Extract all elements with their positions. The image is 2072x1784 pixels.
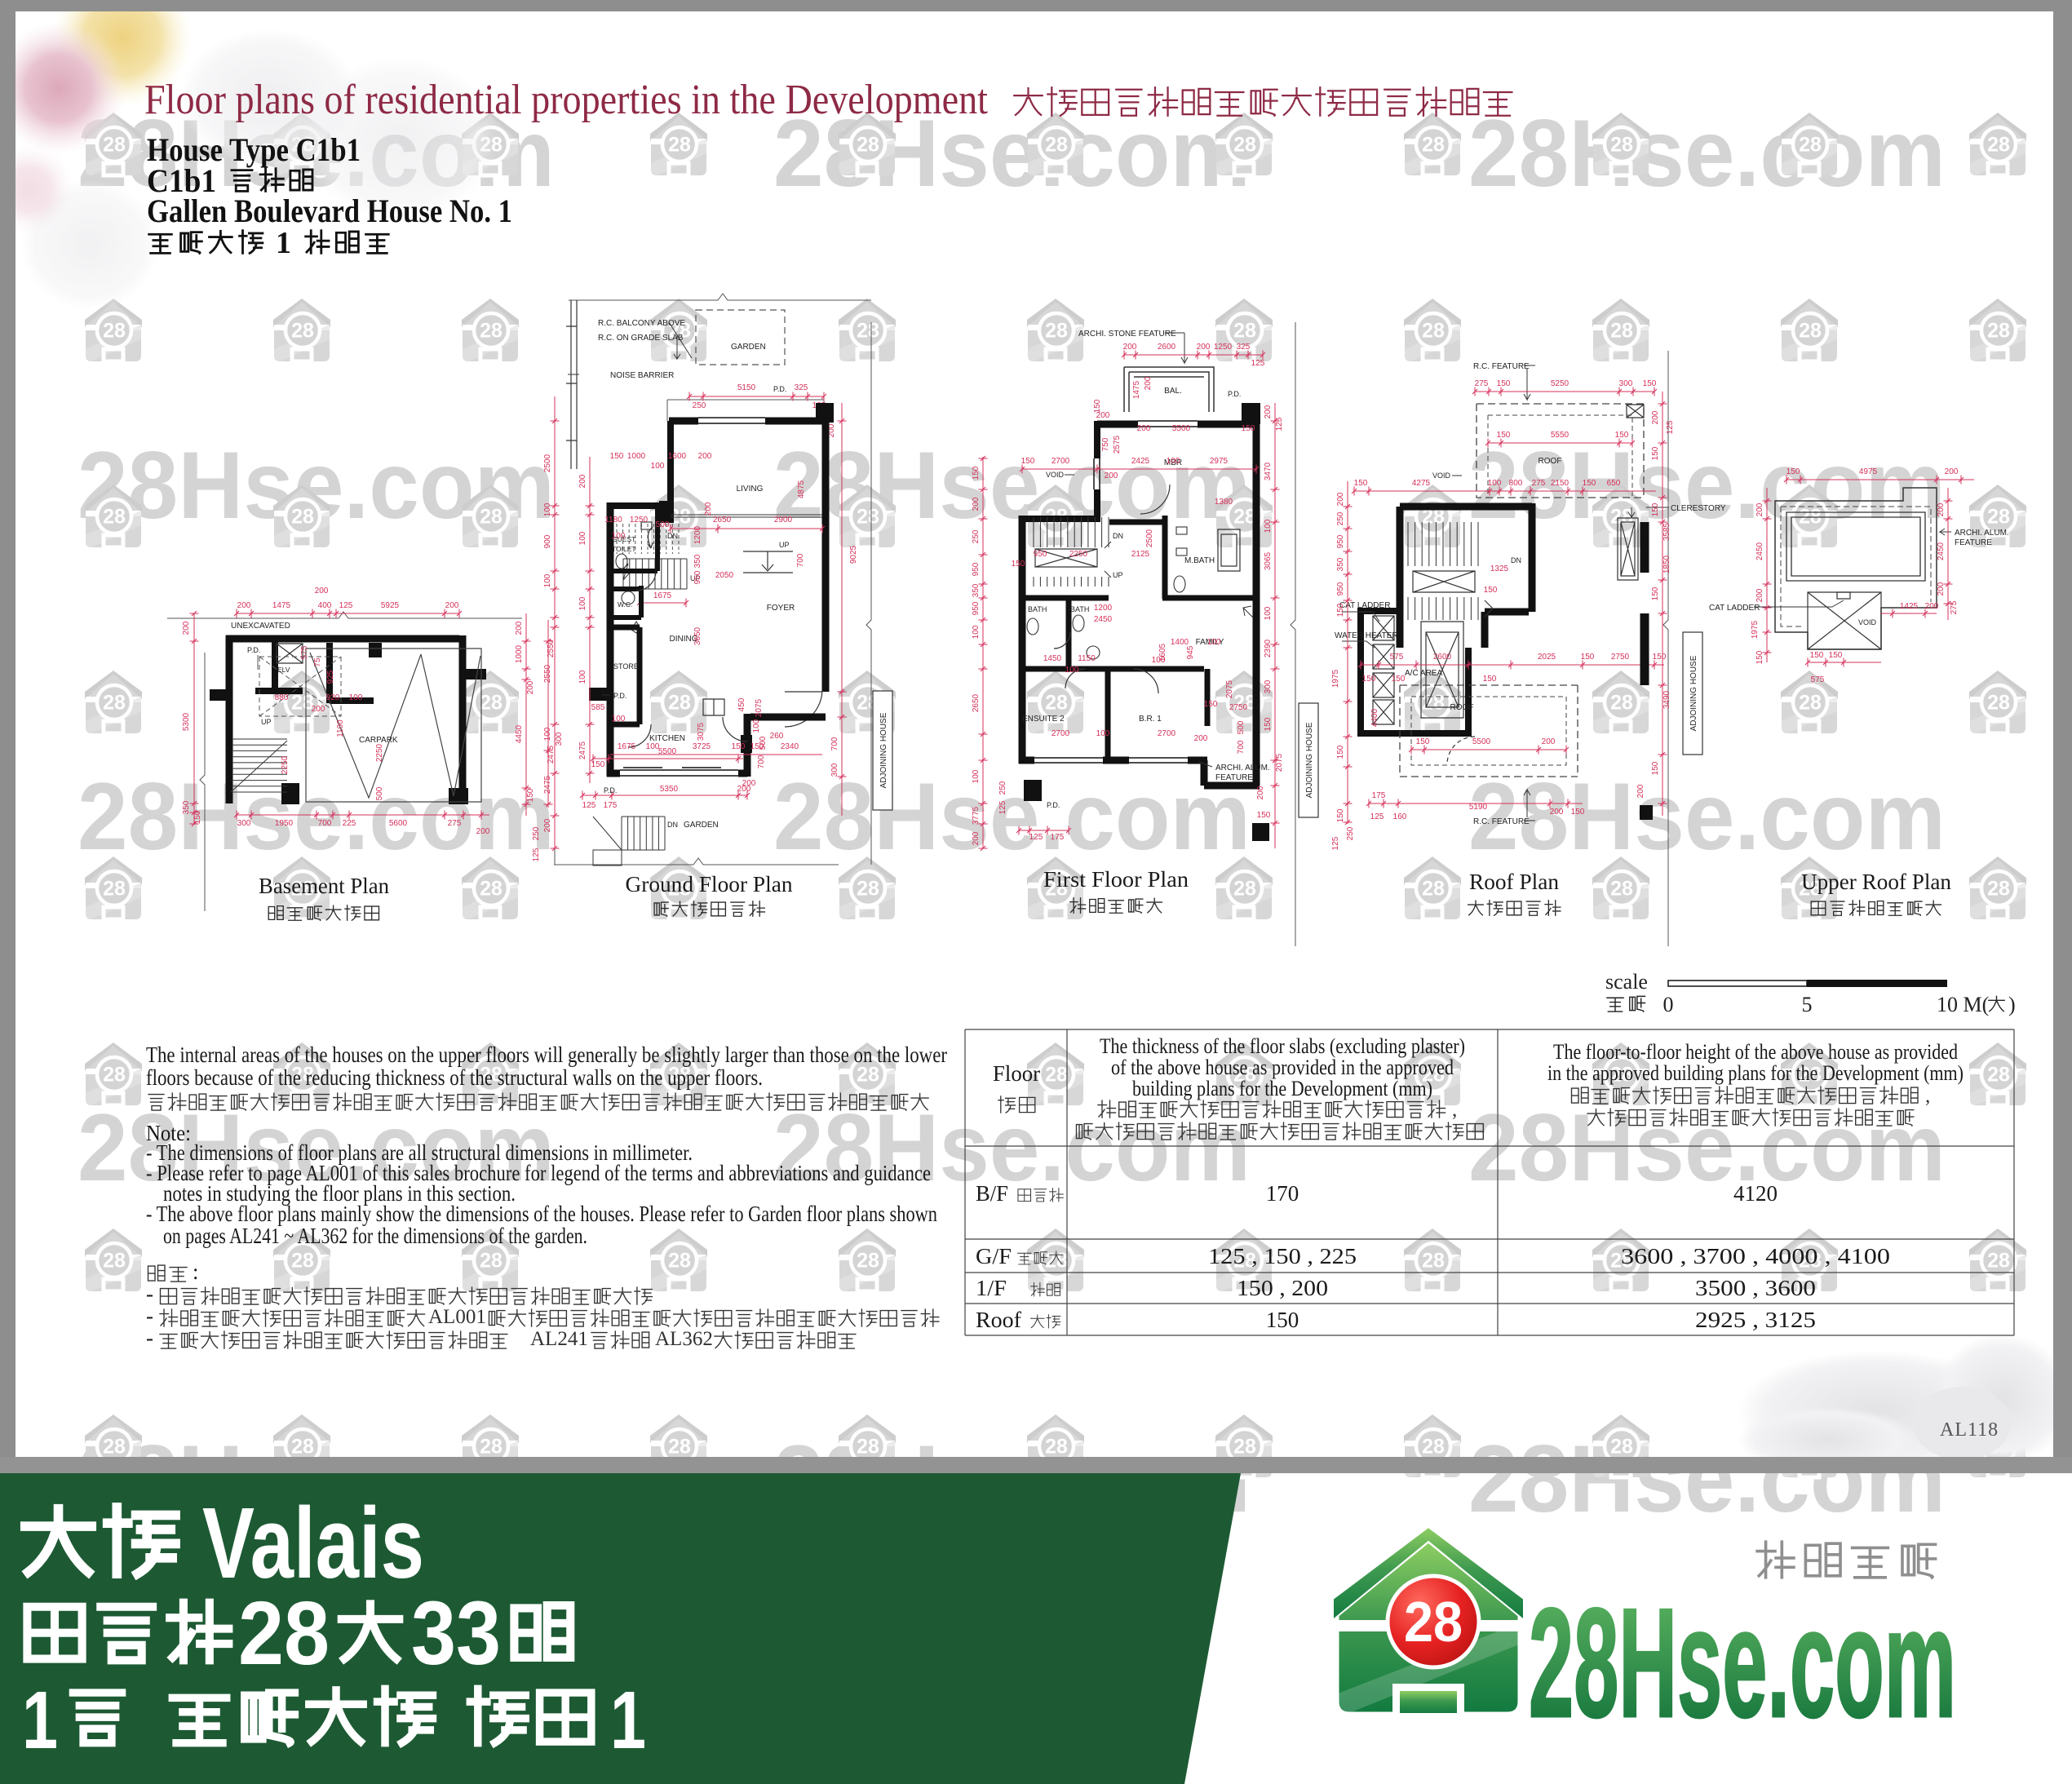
svg-text:DN: DN: [667, 532, 678, 540]
svg-text:125 , 150 , 225: 125 , 150 , 225: [1208, 1244, 1357, 1268]
svg-text:4975: 4975: [1859, 467, 1878, 476]
svg-text:DN: DN: [1511, 556, 1521, 564]
svg-text:1975: 1975: [1751, 620, 1760, 639]
svg-text:2700: 2700: [1051, 729, 1070, 738]
svg-text:-: -: [146, 1304, 153, 1328]
svg-text:500: 500: [759, 736, 768, 750]
svg-text:100: 100: [1264, 606, 1273, 620]
svg-text:10 M(: 10 M(: [1937, 993, 1989, 1016]
svg-text:150: 150: [1021, 457, 1035, 466]
svg-text:2150: 2150: [1551, 479, 1569, 488]
svg-text:950: 950: [693, 570, 702, 584]
svg-text:1250: 1250: [630, 516, 649, 525]
svg-text:150: 150: [1755, 650, 1764, 664]
svg-text:2340: 2340: [781, 742, 799, 751]
svg-text:scale: scale: [1605, 970, 1648, 994]
svg-text:3600 , 3700 , 4000 , 4100: 3600 , 3700 , 4000 , 4100: [1621, 1244, 1890, 1268]
svg-text:2025: 2025: [1538, 653, 1556, 662]
svg-text:R.C. ON GRADE SLAB: R.C. ON GRADE SLAB: [598, 334, 684, 343]
svg-text:150: 150: [1651, 761, 1660, 775]
svg-text:Floor: Floor: [993, 1061, 1040, 1086]
svg-text:150: 150: [1354, 479, 1368, 488]
svg-text:150: 150: [732, 742, 746, 751]
svg-text:700: 700: [796, 553, 805, 567]
svg-text:1150: 1150: [1078, 654, 1096, 663]
svg-text:1380: 1380: [1215, 498, 1233, 507]
svg-text:BATH: BATH: [1028, 605, 1047, 613]
svg-text:150: 150: [526, 788, 535, 802]
svg-text:3775: 3775: [972, 806, 981, 825]
svg-text:150: 150: [1497, 379, 1511, 388]
svg-text:150: 150: [1651, 502, 1660, 516]
svg-text:5: 5: [1802, 993, 1813, 1016]
svg-text:200: 200: [1123, 343, 1137, 352]
svg-text:880: 880: [275, 693, 289, 702]
svg-text:100: 100: [1096, 729, 1110, 738]
svg-text:275: 275: [448, 819, 462, 828]
svg-text:300: 300: [237, 819, 251, 828]
svg-text:2925 , 3125: 2925 , 3125: [1695, 1308, 1816, 1332]
svg-text:200: 200: [578, 474, 587, 488]
svg-text:200: 200: [742, 779, 756, 788]
svg-text:650: 650: [1607, 479, 1621, 488]
svg-text:1325: 1325: [1490, 564, 1509, 573]
svg-text:5500: 5500: [1472, 737, 1491, 746]
svg-text:575: 575: [1811, 675, 1825, 684]
svg-text:150: 150: [1264, 717, 1273, 731]
svg-text:100: 100: [543, 573, 552, 587]
svg-text:200: 200: [476, 827, 490, 836]
svg-text:200: 200: [1651, 410, 1660, 424]
svg-text:160: 160: [1393, 812, 1407, 821]
svg-text:28Hse.com: 28Hse.com: [1468, 763, 1946, 870]
svg-text:150: 150: [1643, 379, 1657, 388]
svg-text:ROOF: ROOF: [1450, 703, 1474, 712]
svg-text:3585: 3585: [1662, 522, 1671, 541]
svg-text:WATER HEATER: WATER HEATER: [1335, 631, 1398, 640]
svg-text:33: 33: [411, 1583, 501, 1684]
svg-text:P.D.: P.D.: [613, 692, 626, 700]
svg-text:200: 200: [526, 680, 535, 694]
svg-text:200: 200: [1925, 602, 1939, 611]
svg-text:2500: 2500: [1145, 529, 1154, 547]
svg-text:100: 100: [578, 596, 587, 610]
svg-text:1425: 1425: [1900, 602, 1919, 611]
svg-text:1250: 1250: [1214, 343, 1233, 352]
svg-text:200: 200: [1144, 376, 1153, 390]
svg-text:100: 100: [543, 727, 552, 741]
svg-text:Floor plans of residential pro: Floor plans of residential properties in…: [144, 77, 988, 123]
svg-text:ENSUITE 2: ENSUITE 2: [1022, 715, 1065, 724]
svg-text:150: 150: [1651, 446, 1660, 460]
svg-text:1200: 1200: [1094, 604, 1113, 613]
svg-text:5550: 5550: [1551, 431, 1569, 440]
svg-text:2125: 2125: [1131, 550, 1150, 559]
svg-text:1675: 1675: [618, 742, 636, 751]
svg-text:Basement Plan: Basement Plan: [259, 874, 389, 898]
svg-text:3725: 3725: [693, 742, 711, 751]
svg-text:125: 125: [1251, 359, 1265, 368]
svg-text:150: 150: [972, 466, 981, 480]
svg-text:28Hse.com: 28Hse.com: [1468, 100, 1946, 206]
svg-text:2750: 2750: [1611, 653, 1630, 662]
svg-text:2075: 2075: [755, 698, 764, 717]
svg-text:28: 28: [1404, 1590, 1463, 1653]
svg-text:DN: DN: [667, 821, 678, 829]
svg-text:1675: 1675: [653, 591, 672, 600]
svg-text:GARDEN: GARDEN: [731, 343, 766, 352]
svg-text:VOID: VOID: [1858, 618, 1877, 626]
svg-text:4875: 4875: [797, 480, 806, 498]
svg-text:2900: 2900: [774, 516, 793, 525]
svg-text:UP: UP: [1113, 571, 1123, 579]
svg-text:200: 200: [543, 818, 552, 832]
svg-text:ARCHI. ALUM.: ARCHI. ALUM.: [1955, 529, 2009, 538]
svg-text:1850: 1850: [1662, 555, 1671, 573]
svg-text:250: 250: [532, 826, 541, 840]
svg-text:P.D.: P.D.: [1047, 801, 1060, 809]
svg-text:575: 575: [300, 645, 309, 659]
svg-text:150: 150: [1336, 745, 1345, 759]
svg-text:700: 700: [318, 819, 332, 828]
svg-text:9025: 9025: [849, 545, 858, 564]
svg-text:150: 150: [610, 452, 624, 461]
svg-text:750: 750: [1101, 437, 1110, 451]
svg-text:250: 250: [972, 529, 981, 543]
svg-text:2575: 2575: [1113, 435, 1122, 454]
svg-text:4400: 4400: [1370, 708, 1379, 727]
svg-text:ROOF: ROOF: [1539, 457, 1562, 466]
svg-text:2250: 2250: [1069, 550, 1088, 559]
svg-text:350: 350: [693, 554, 702, 568]
svg-text:2650: 2650: [713, 516, 732, 525]
svg-text:100: 100: [972, 769, 981, 783]
svg-text:building plans for the Develop: building plans for the Development (mm): [1132, 1077, 1432, 1100]
svg-text:125: 125: [1029, 833, 1043, 842]
svg-text:150: 150: [1810, 651, 1824, 660]
svg-text:5350: 5350: [660, 785, 679, 794]
svg-text:5150: 5150: [737, 383, 756, 392]
svg-text:100: 100: [1152, 656, 1166, 665]
svg-text:700: 700: [1237, 740, 1246, 754]
svg-text:1400: 1400: [1171, 638, 1189, 647]
svg-text:350: 350: [972, 583, 981, 597]
svg-text:500: 500: [1237, 720, 1246, 734]
svg-text:2975: 2975: [1210, 457, 1229, 466]
svg-text:170: 170: [1266, 1181, 1299, 1206]
svg-text:ARCHI. ALUM.: ARCHI. ALUM.: [1215, 764, 1270, 772]
svg-text:150: 150: [1615, 431, 1629, 440]
svg-text:P.D.: P.D.: [1228, 390, 1241, 398]
svg-text:CAT LADDER: CAT LADDER: [1339, 601, 1390, 610]
svg-text:BATH: BATH: [1070, 605, 1089, 613]
svg-text:125: 125: [339, 601, 353, 610]
svg-text:700: 700: [830, 737, 839, 750]
svg-text:FOYER: FOYER: [767, 604, 795, 613]
svg-text:700: 700: [757, 755, 766, 768]
svg-text:3075: 3075: [697, 722, 706, 741]
svg-text:125: 125: [1331, 836, 1340, 850]
svg-text:AL001: AL001: [428, 1306, 486, 1328]
svg-text:2425: 2425: [1131, 457, 1150, 466]
svg-text:28: 28: [238, 1583, 330, 1684]
svg-text:G/F: G/F: [976, 1244, 1012, 1268]
svg-text:200: 200: [237, 601, 251, 610]
svg-text:4120: 4120: [1733, 1181, 1778, 1206]
svg-text:100: 100: [349, 693, 363, 702]
svg-text:1600: 1600: [668, 452, 687, 461]
svg-text:100: 100: [651, 462, 665, 471]
svg-text:200: 200: [182, 621, 191, 635]
svg-text:150: 150: [1829, 651, 1843, 660]
svg-text:1100: 1100: [336, 719, 345, 737]
svg-text:150: 150: [1242, 424, 1255, 433]
svg-text:950: 950: [1336, 534, 1345, 548]
svg-text::: :: [193, 1259, 199, 1284]
svg-text:2450: 2450: [1094, 615, 1113, 624]
svg-text:200: 200: [972, 497, 981, 511]
svg-text:175: 175: [1051, 833, 1065, 842]
svg-text:2250: 2250: [375, 743, 384, 762]
svg-text:P.D.: P.D.: [604, 786, 617, 795]
svg-text:150: 150: [1653, 653, 1667, 662]
svg-text:300: 300: [555, 732, 564, 746]
svg-text:100: 100: [1065, 666, 1079, 675]
svg-text:2550: 2550: [543, 664, 552, 683]
svg-text:5190: 5190: [1469, 803, 1488, 812]
svg-text:R.C. BALCONY ABOVE: R.C. BALCONY ABOVE: [598, 319, 685, 328]
svg-text:950: 950: [1034, 550, 1047, 559]
svg-text:AL241: AL241: [530, 1328, 588, 1350]
svg-text:150: 150: [1583, 479, 1596, 488]
svg-text:575: 575: [1390, 653, 1404, 662]
svg-text:200: 200: [312, 705, 325, 714]
svg-text:1180: 1180: [604, 516, 622, 525]
svg-text:100: 100: [578, 670, 587, 684]
svg-text:TOILET: TOILET: [612, 545, 636, 553]
svg-text:925: 925: [326, 670, 335, 684]
svg-text:P.D.: P.D.: [773, 385, 786, 393]
svg-text:VOID: VOID: [1046, 471, 1065, 479]
svg-text:FEATURE: FEATURE: [1215, 773, 1253, 782]
svg-text:950: 950: [1336, 582, 1345, 595]
svg-text:200: 200: [1755, 502, 1764, 516]
svg-text:150: 150: [1416, 737, 1430, 746]
svg-text:B.R. 1: B.R. 1: [1139, 715, 1162, 724]
svg-text:1475: 1475: [272, 601, 291, 610]
svg-text:350: 350: [1336, 557, 1345, 571]
svg-text:,: ,: [1925, 1085, 1930, 1107]
svg-text:200: 200: [698, 452, 712, 461]
svg-text:of the above house as provided: of the above house as provided in the ap…: [1111, 1056, 1454, 1079]
svg-text:STORE: STORE: [613, 662, 639, 671]
svg-text:200: 200: [445, 601, 459, 610]
svg-text:28Hse.com: 28Hse.com: [1529, 1577, 1956, 1750]
svg-text:AL118: AL118: [1940, 1419, 1999, 1441]
svg-text:150: 150: [1497, 431, 1511, 440]
svg-text:100: 100: [972, 625, 981, 639]
svg-text:920: 920: [326, 693, 340, 702]
svg-text:100: 100: [543, 502, 552, 516]
svg-text:5500: 5500: [658, 747, 677, 756]
svg-text:100: 100: [1207, 638, 1221, 647]
svg-text:A/C AREA: A/C AREA: [1405, 669, 1442, 678]
svg-text:175: 175: [604, 801, 618, 810]
svg-text:ADJOINING HOUSE: ADJOINING HOUSE: [1689, 655, 1698, 731]
svg-text:2750: 2750: [1229, 703, 1248, 712]
svg-text:450: 450: [737, 697, 746, 711]
svg-text:GARDEN: GARDEN: [684, 821, 719, 830]
svg-text:1200: 1200: [693, 525, 702, 544]
svg-text:150: 150: [1651, 587, 1660, 600]
svg-text:100: 100: [752, 719, 761, 733]
svg-text:325: 325: [1237, 343, 1251, 352]
svg-text:225: 225: [343, 819, 356, 828]
svg-text:150: 150: [1257, 811, 1271, 820]
svg-text:The floor-to-floor height of t: The floor-to-floor height of the above h…: [1553, 1040, 1958, 1064]
svg-text:CLERESTORY: CLERESTORY: [1671, 504, 1726, 513]
svg-text:5925: 5925: [381, 601, 400, 610]
svg-text:250: 250: [1346, 826, 1355, 840]
svg-text:150: 150: [1336, 808, 1345, 822]
svg-text:2475: 2475: [578, 741, 587, 759]
svg-text:2050: 2050: [715, 571, 734, 580]
svg-text:Roof Plan: Roof Plan: [1469, 870, 1559, 894]
svg-text:on pages AL241 ~ AL362 for the: on pages AL241 ~ AL362 for the dimension…: [163, 1224, 587, 1248]
svg-text:3650: 3650: [693, 626, 702, 645]
svg-text:150: 150: [1571, 808, 1585, 817]
svg-text:2600: 2600: [1433, 653, 1452, 662]
svg-text:AL362: AL362: [655, 1328, 713, 1350]
svg-text:1: 1: [22, 1675, 58, 1766]
svg-text:100: 100: [1264, 519, 1273, 533]
svg-text:100: 100: [1488, 479, 1502, 488]
svg-text:125: 125: [1275, 417, 1284, 431]
svg-text:350: 350: [182, 800, 191, 814]
svg-text:1000: 1000: [515, 644, 524, 663]
svg-text:150: 150: [1581, 653, 1595, 662]
svg-text:150: 150: [1093, 399, 1102, 413]
svg-text:325: 325: [795, 383, 808, 392]
svg-text:5600: 5600: [389, 819, 408, 828]
svg-text:): ): [2008, 993, 2016, 1016]
svg-text:300: 300: [1619, 379, 1633, 388]
svg-text:1: 1: [610, 1675, 646, 1766]
svg-text:3470: 3470: [1264, 462, 1273, 480]
svg-text:200: 200: [1197, 343, 1211, 352]
svg-text:200: 200: [1542, 737, 1556, 746]
svg-text:1: 1: [276, 226, 291, 260]
svg-text:2390: 2390: [1264, 639, 1273, 657]
svg-text:ADJOINING HOUSE: ADJOINING HOUSE: [1305, 722, 1314, 798]
svg-text:2550: 2550: [547, 639, 556, 657]
svg-text:200: 200: [704, 502, 713, 516]
svg-text:1975: 1975: [1331, 669, 1340, 688]
svg-text:500: 500: [656, 520, 670, 529]
svg-text:4275: 4275: [1412, 479, 1431, 488]
svg-text:100: 100: [612, 715, 626, 724]
svg-text:5250: 5250: [1551, 379, 1569, 388]
svg-text:ARCHI. STONE FEATURE: ARCHI. STONE FEATURE: [1078, 330, 1176, 339]
svg-text:100: 100: [578, 531, 587, 545]
svg-text:Roof: Roof: [976, 1308, 1021, 1332]
svg-text:125: 125: [1666, 420, 1675, 434]
svg-text:800: 800: [1509, 479, 1523, 488]
svg-text:250: 250: [693, 401, 706, 410]
svg-text:2700: 2700: [1051, 457, 1070, 466]
svg-text:Ground Floor Plan: Ground Floor Plan: [626, 872, 794, 896]
svg-text:0: 0: [1663, 993, 1674, 1016]
svg-text:ADJOINING HOUSE: ADJOINING HOUSE: [879, 712, 888, 788]
svg-text:3065: 3065: [1264, 551, 1273, 570]
svg-text:200: 200: [1137, 424, 1151, 433]
svg-text:200: 200: [1755, 588, 1764, 602]
svg-text:945: 945: [1186, 645, 1195, 659]
svg-text:900: 900: [543, 534, 552, 548]
svg-text:275: 275: [1532, 479, 1546, 488]
svg-text:2450: 2450: [1755, 542, 1764, 560]
svg-text:2450: 2450: [1937, 542, 1946, 560]
svg-text:FEATURE: FEATURE: [1955, 538, 1992, 547]
svg-text:150: 150: [1484, 586, 1498, 595]
svg-text:500: 500: [375, 786, 384, 800]
svg-text:200: 200: [515, 621, 524, 635]
svg-text:200: 200: [1945, 467, 1959, 476]
svg-text:125: 125: [998, 800, 1007, 814]
svg-text:250: 250: [998, 781, 1007, 795]
svg-text:First Floor Plan: First Floor Plan: [1043, 867, 1189, 892]
svg-text:150: 150: [1786, 467, 1800, 476]
svg-text:1450: 1450: [1043, 654, 1062, 663]
svg-text:200: 200: [1937, 502, 1946, 516]
svg-text:125: 125: [1370, 812, 1384, 821]
svg-text:1950: 1950: [275, 819, 294, 828]
svg-text:75: 75: [313, 657, 322, 667]
svg-text:100: 100: [612, 532, 626, 541]
svg-text:3500 , 3600: 3500 , 3600: [1695, 1276, 1816, 1300]
svg-text:Upper Roof Plan: Upper Roof Plan: [1801, 870, 1951, 894]
svg-text:UP: UP: [779, 541, 790, 549]
svg-text:125: 125: [582, 801, 596, 810]
svg-text:250: 250: [1336, 511, 1345, 525]
svg-text:R.C. FEATURE: R.C. FEATURE: [1473, 362, 1530, 371]
svg-text:B/F: B/F: [976, 1181, 1008, 1206]
svg-text:M.BATH: M.BATH: [1184, 556, 1215, 565]
svg-text:2600: 2600: [1158, 343, 1176, 352]
svg-text:-: -: [146, 1326, 153, 1350]
svg-text:175: 175: [1372, 791, 1386, 800]
svg-text:200: 200: [1937, 582, 1946, 595]
svg-text:150: 150: [193, 810, 202, 824]
svg-text:275: 275: [1475, 379, 1489, 388]
svg-text:floors because of the reducing: floors because of the reducing thickness…: [146, 1065, 763, 1090]
svg-text:4450: 4450: [515, 724, 524, 743]
svg-text:1/F: 1/F: [976, 1276, 1007, 1300]
svg-text:200: 200: [1550, 808, 1564, 817]
svg-text:950: 950: [972, 601, 981, 615]
svg-text:CARPARK: CARPARK: [359, 736, 398, 745]
svg-text:150: 150: [1012, 560, 1025, 569]
svg-text:150: 150: [1362, 675, 1376, 684]
svg-text:- The above floor plans mainly: - The above floor plans mainly show the …: [146, 1202, 937, 1226]
svg-text:2500: 2500: [543, 454, 552, 472]
svg-text:UNEXCAVATED: UNEXCAVATED: [231, 622, 290, 631]
svg-text:1000: 1000: [627, 452, 646, 461]
svg-text:150: 150: [1266, 1308, 1299, 1332]
svg-text:LIVING: LIVING: [737, 485, 764, 494]
svg-text:DN: DN: [1113, 532, 1123, 540]
svg-text:260: 260: [770, 732, 784, 741]
